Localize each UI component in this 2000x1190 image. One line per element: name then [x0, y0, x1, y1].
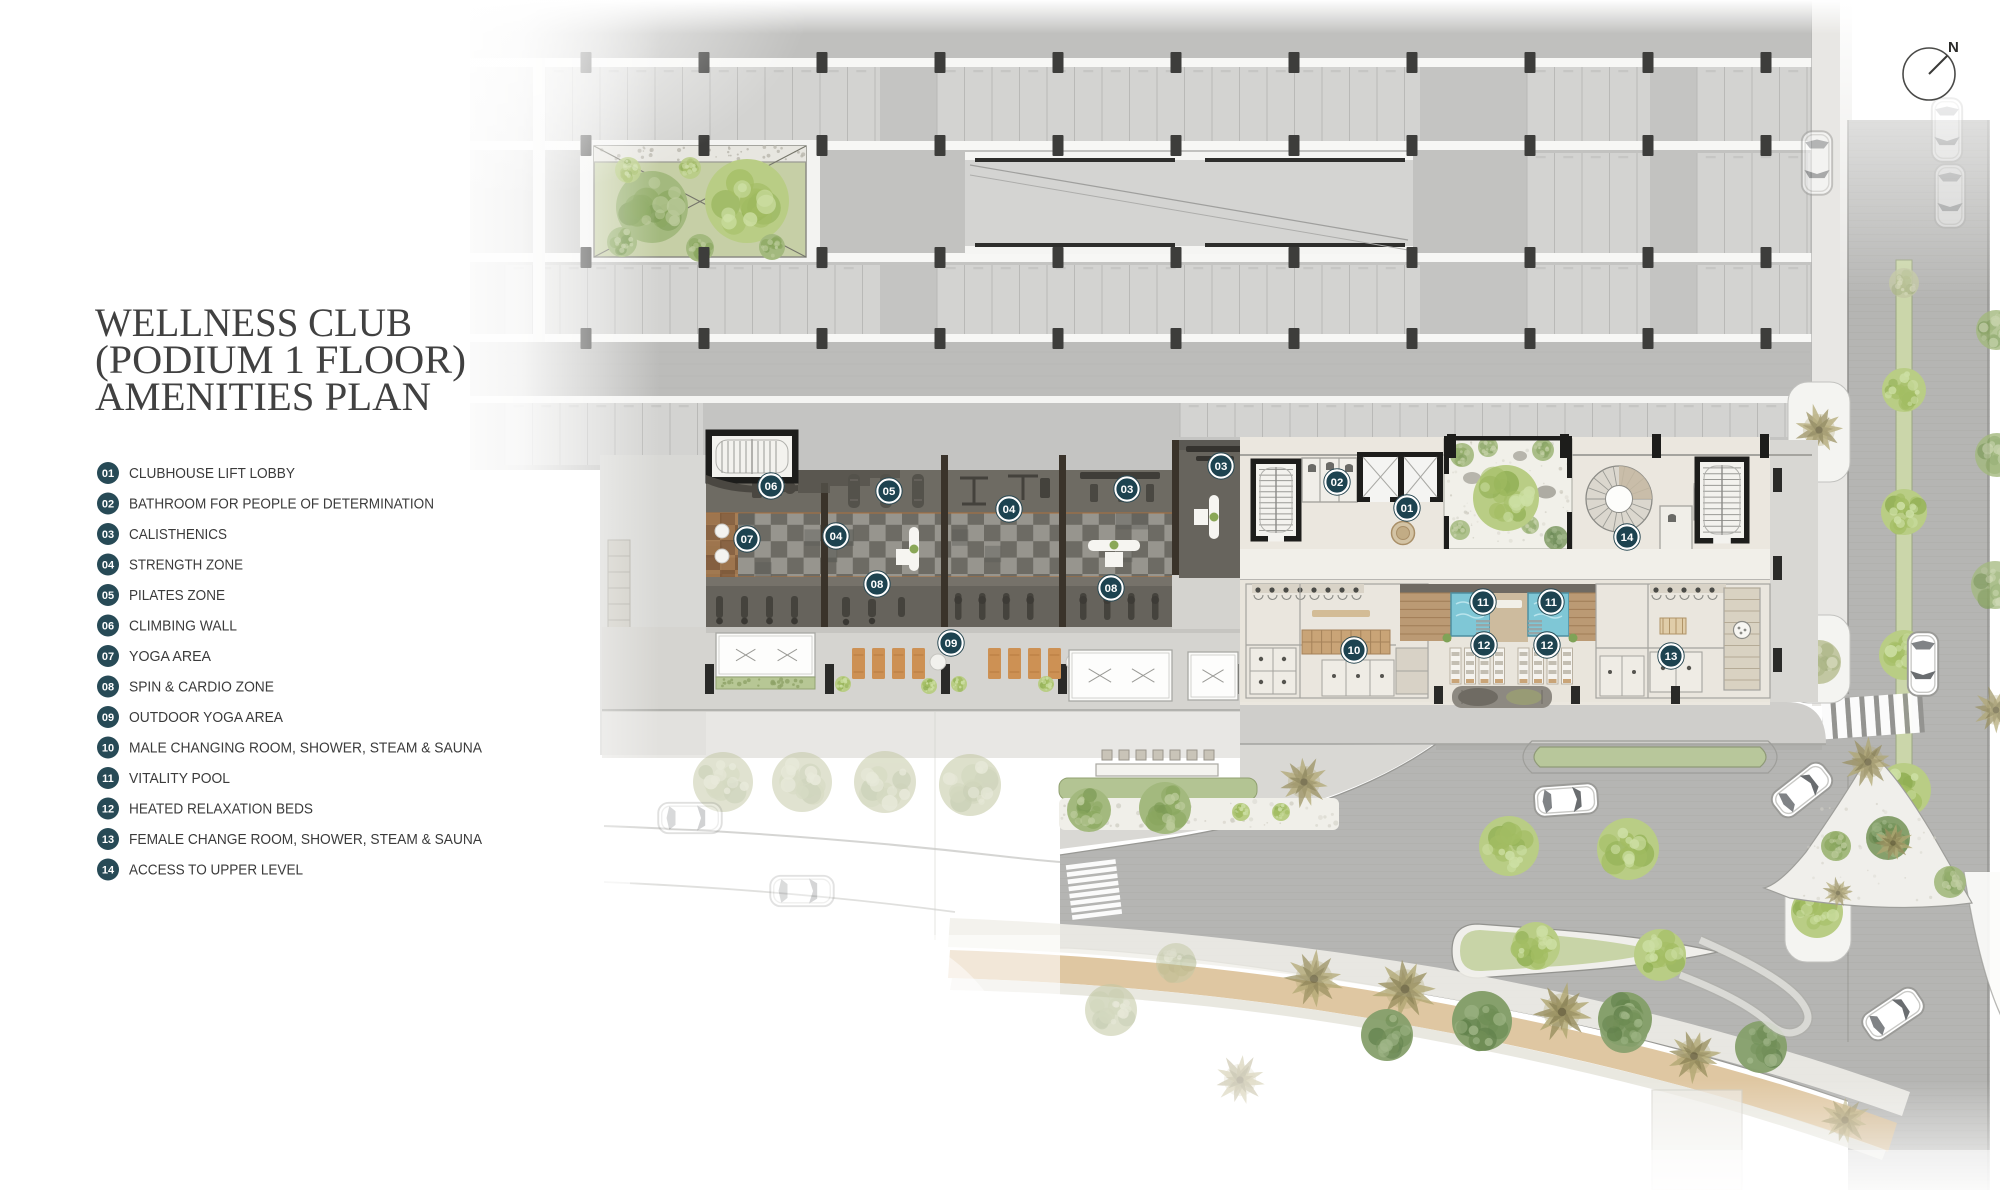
svg-text:06: 06 — [102, 621, 114, 633]
svg-text:VITALITY POOL: VITALITY POOL — [129, 770, 230, 787]
svg-text:13: 13 — [102, 834, 114, 846]
svg-text:ACCESS TO UPPER LEVEL: ACCESS TO UPPER LEVEL — [129, 862, 303, 879]
svg-text:05: 05 — [883, 486, 896, 498]
svg-text:02: 02 — [1331, 477, 1344, 489]
svg-text:07: 07 — [741, 534, 754, 546]
svg-text:08: 08 — [871, 579, 884, 591]
svg-text:04: 04 — [1003, 504, 1016, 516]
svg-text:10: 10 — [1348, 645, 1361, 657]
svg-text:01: 01 — [1401, 503, 1414, 515]
svg-text:FEMALE CHANGE ROOM, SHOWER, ST: FEMALE CHANGE ROOM, SHOWER, STEAM & SAUN… — [129, 831, 483, 848]
svg-text:CLUBHOUSE LIFT LOBBY: CLUBHOUSE LIFT LOBBY — [129, 465, 295, 482]
svg-text:AMENITIES PLAN: AMENITIES PLAN — [95, 374, 431, 419]
svg-text:11: 11 — [1545, 597, 1558, 609]
svg-text:06: 06 — [765, 481, 778, 493]
svg-text:02: 02 — [102, 499, 114, 511]
svg-text:12: 12 — [102, 804, 114, 816]
svg-text:BATHROOM FOR PEOPLE OF DETERMI: BATHROOM FOR PEOPLE OF DETERMINATION — [129, 496, 434, 513]
svg-text:11: 11 — [1477, 597, 1490, 609]
svg-text:04: 04 — [830, 531, 843, 543]
svg-text:10: 10 — [102, 743, 114, 755]
svg-text:03: 03 — [102, 529, 114, 541]
svg-text:13: 13 — [1665, 651, 1678, 663]
svg-text:07: 07 — [102, 651, 114, 663]
svg-text:14: 14 — [1621, 532, 1634, 544]
svg-text:MALE CHANGING ROOM, SHOWER, ST: MALE CHANGING ROOM, SHOWER, STEAM & SAUN… — [129, 740, 483, 757]
svg-text:OUTDOOR YOGA AREA: OUTDOOR YOGA AREA — [129, 709, 284, 726]
svg-text:04: 04 — [102, 560, 115, 572]
svg-text:HEATED RELAXATION BEDS: HEATED RELAXATION BEDS — [129, 801, 313, 818]
svg-text:12: 12 — [1541, 640, 1554, 652]
svg-text:08: 08 — [102, 682, 114, 694]
svg-text:STRENGTH ZONE: STRENGTH ZONE — [129, 557, 243, 574]
svg-text:09: 09 — [102, 712, 114, 724]
svg-text:CLIMBING WALL: CLIMBING WALL — [129, 618, 237, 635]
svg-text:CALISTHENICS: CALISTHENICS — [129, 526, 227, 543]
svg-text:SPIN & CARDIO ZONE: SPIN & CARDIO ZONE — [129, 679, 274, 696]
svg-text:08: 08 — [1105, 583, 1118, 595]
svg-text:05: 05 — [102, 590, 114, 602]
svg-text:YOGA AREA: YOGA AREA — [129, 648, 212, 665]
svg-text:09: 09 — [945, 638, 958, 650]
svg-text:14: 14 — [102, 865, 115, 877]
svg-text:12: 12 — [1478, 640, 1491, 652]
svg-text:03: 03 — [1121, 484, 1134, 496]
svg-text:01: 01 — [102, 468, 114, 480]
svg-text:03: 03 — [1215, 461, 1228, 473]
svg-text:11: 11 — [102, 773, 114, 785]
svg-text:N: N — [1948, 39, 1959, 56]
svg-text:PILATES ZONE: PILATES ZONE — [129, 587, 225, 604]
